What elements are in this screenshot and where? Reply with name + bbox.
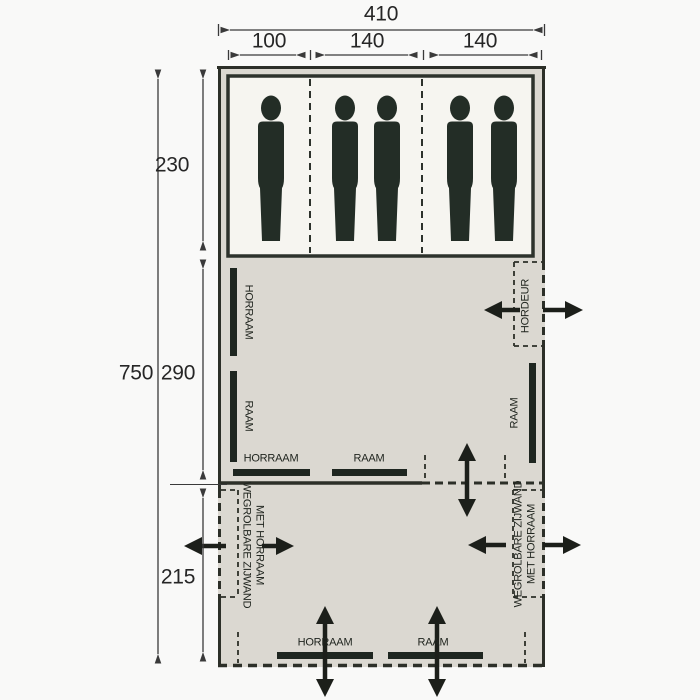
window-bar-divider-raam (332, 469, 407, 476)
label-right-wall-raam: RAAM (510, 398, 521, 429)
label-left-wall-raam: RAAM (243, 401, 254, 432)
dim-width-section-3: 140 (463, 31, 497, 52)
rollaway-left-arrow-out-icon (184, 537, 202, 555)
dim-depth-total: 750 (119, 363, 153, 384)
label-rollaway-left-line2: MET HORRAAM (254, 505, 265, 585)
window-bar-left-horraam (230, 268, 237, 356)
front-raam-arrow-down-icon (428, 679, 446, 697)
label-front-raam: RAAM (418, 638, 449, 649)
tent-floorplan-diagram: 410 100 140 140 750 230 290 215 HORRAAM … (0, 0, 700, 700)
label-divider-horraam: HORRAAM (244, 454, 299, 465)
floorplan-graphics (0, 0, 700, 700)
dim-width-section-2: 140 (350, 31, 384, 52)
label-rollaway-left-line1: WEGROLBARE ZIJWAND (241, 482, 252, 609)
label-front-horraam: HORRAAM (298, 638, 353, 649)
label-divider-raam: RAAM (354, 454, 385, 465)
front-horraam-arrow-down-icon (316, 679, 334, 697)
window-bar-left-raam (230, 371, 237, 462)
dim-depth-section-3: 215 (161, 567, 195, 588)
label-right-wall-hordeur: HORDEUR (521, 279, 532, 333)
dim-width-total: 410 (364, 4, 398, 25)
window-bar-divider-horraam (233, 469, 310, 476)
label-rollaway-right-line2: MET HORRAAM (527, 504, 538, 584)
dim-depth-section-1: 230 (155, 155, 189, 176)
door-arrow-out-icon (565, 301, 583, 319)
label-left-wall-horraam: HORRAAM (243, 285, 254, 340)
rollaway-right-arrow-out-icon (563, 536, 581, 554)
dim-width-section-1: 100 (252, 31, 286, 52)
window-bar-right-raam (529, 363, 536, 463)
dim-depth-section-2: 290 (161, 363, 195, 384)
label-rollaway-right-line1: WEGROLBARE ZIJWAND (514, 481, 525, 608)
